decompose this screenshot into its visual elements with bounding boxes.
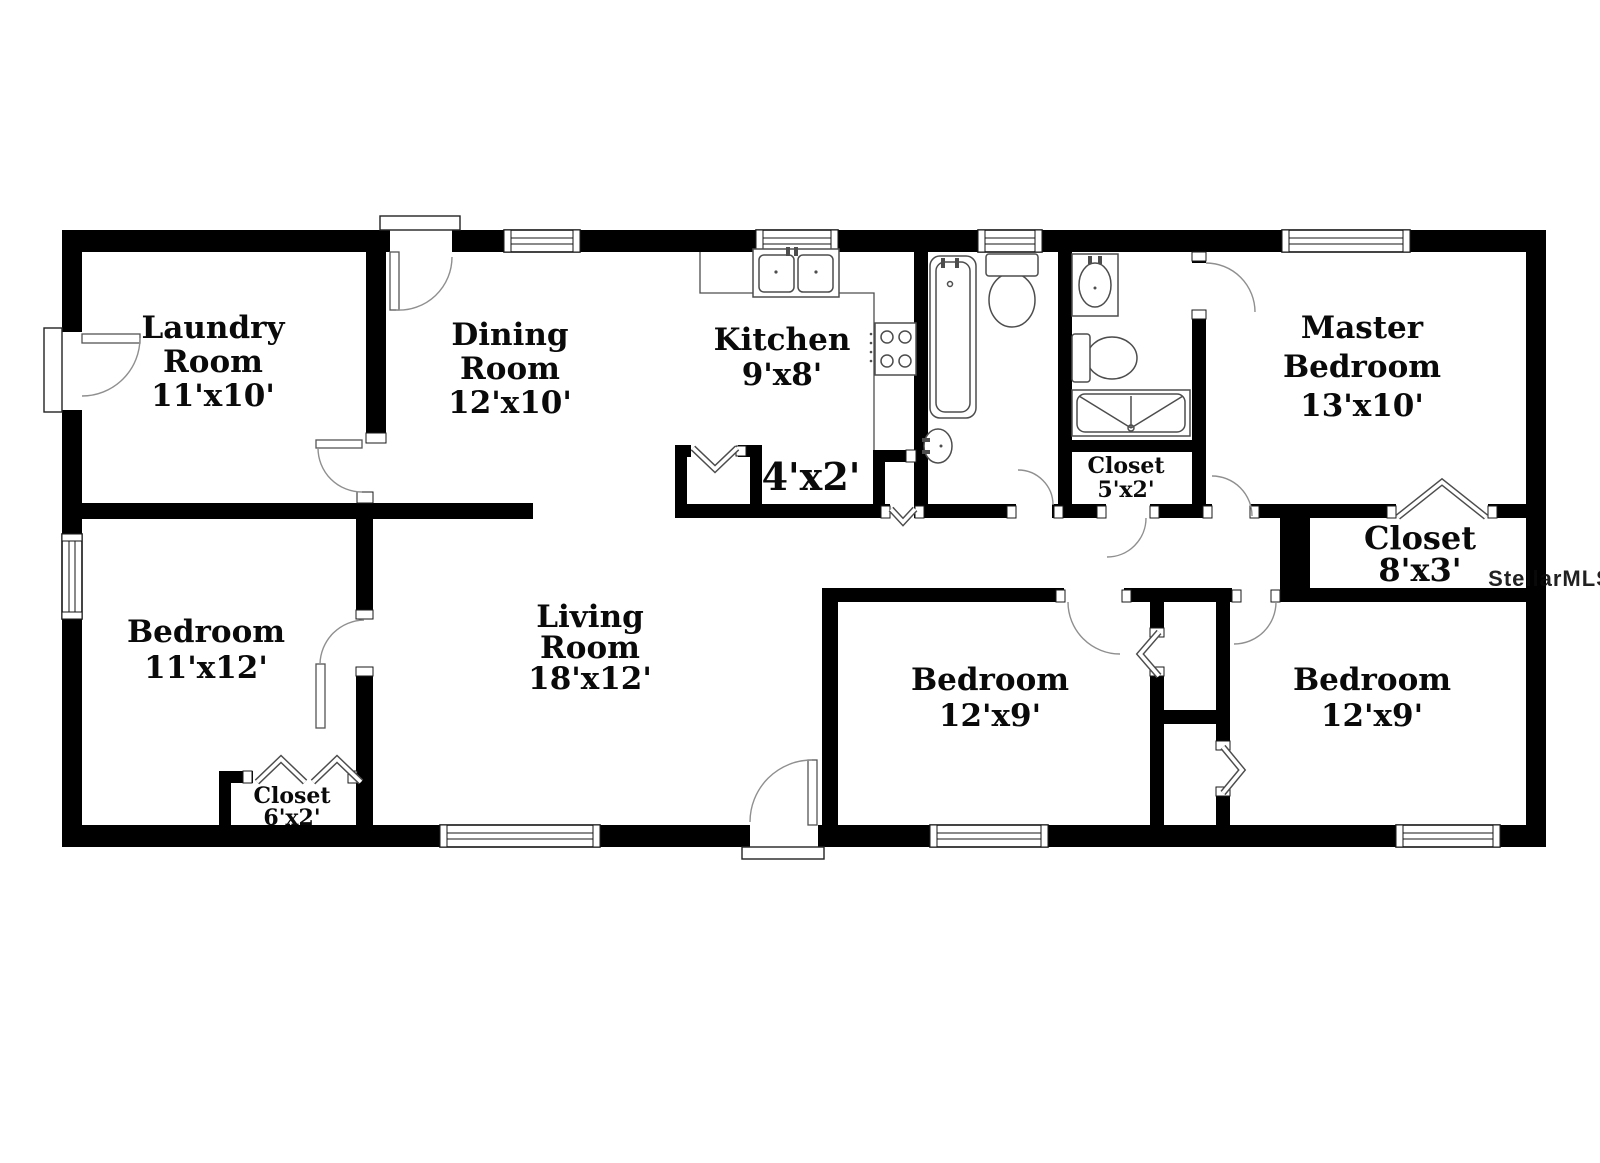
closet-5x2-dims: 5'x2'	[1097, 477, 1154, 503]
laundry-exterior-door-swing	[82, 338, 140, 396]
master-bedroom-dims: 13'x10'	[1300, 388, 1424, 424]
master-bath-sink-icon	[1072, 254, 1118, 316]
laundry-interior-door-swing	[318, 448, 362, 492]
back-door-leaf	[390, 252, 399, 310]
back-door-frame	[380, 216, 460, 230]
living-room-dims: 18'x12'	[528, 661, 652, 697]
back-door-swing	[396, 257, 452, 310]
kitchen-sink-icon	[753, 247, 839, 297]
kitchen-dims: 9'x8'	[742, 357, 823, 393]
master-bedroom-label-1: Master	[1301, 310, 1424, 346]
hall-bath-door-swing	[1018, 470, 1053, 505]
closet-4x2-dims: 4'x2'	[762, 454, 861, 499]
bifold-doors	[257, 448, 1486, 793]
closet-5x2-door-swing	[1107, 518, 1146, 557]
kitchen-label: Kitchen	[714, 322, 851, 358]
bedroom-middle-label: Bedroom	[911, 662, 1069, 698]
stellar-mls-watermark: StellarMLS	[1488, 566, 1600, 591]
bedroom-middle-door-swing	[1068, 602, 1120, 654]
front-door-swing	[750, 760, 812, 822]
bifold-hall-chase-icon	[891, 509, 915, 522]
front-door-leaf	[808, 760, 817, 825]
bedroom-right-dims: 12'x9'	[1321, 698, 1423, 734]
bedroom-right-label: Bedroom	[1293, 662, 1451, 698]
stove-icon	[870, 323, 916, 375]
master-bedroom-label-2: Bedroom	[1283, 349, 1441, 385]
laundry-room-dims: 11'x10'	[151, 378, 275, 414]
bedroom-right-door-swing	[1234, 602, 1276, 644]
bifold-closet-6x2-icon	[257, 759, 361, 782]
bedroom-left-door-leaf	[316, 664, 325, 728]
window-dining	[504, 230, 580, 252]
bifold-closet-bedroom-right-icon	[1223, 747, 1242, 793]
window-living-room	[440, 825, 600, 847]
bedroom-left-dims: 11'x12'	[144, 650, 268, 686]
dining-room-label-2: Room	[460, 351, 560, 387]
master-bath-door-swing	[1206, 263, 1255, 312]
window-bedroom-middle	[930, 825, 1048, 847]
laundry-room-label-1: Laundry	[142, 310, 286, 346]
dining-room-dims: 12'x10'	[448, 385, 572, 421]
shower-icon	[1072, 390, 1190, 436]
bifold-closet-master-icon	[1398, 482, 1486, 517]
laundry-exterior-door-leaf	[82, 334, 140, 343]
laundry-interior-door-leaf	[316, 440, 362, 448]
window-hall-bath	[978, 230, 1042, 252]
bedroom-left-label: Bedroom	[127, 614, 285, 650]
hall-toilet-icon	[986, 254, 1038, 327]
bedroom-left-door-swing	[320, 620, 364, 664]
closet-5x2-label: Closet	[1087, 453, 1165, 479]
dining-room-label-1: Dining	[451, 317, 568, 353]
laundry-room-label-2: Room	[163, 344, 263, 380]
master-toilet-icon	[1072, 334, 1137, 382]
bifold-closet-4x2-icon	[693, 448, 737, 469]
window-master-bedroom	[1282, 230, 1410, 252]
floor-plan: Laundry Room 11'x10' Dining Room 12'x10'…	[0, 0, 1600, 1163]
laundry-door-frame	[44, 328, 62, 412]
closet-8x3-dims: 8'x3'	[1378, 551, 1461, 589]
window-bedroom-right	[1396, 825, 1500, 847]
room-labels: Laundry Room 11'x10' Dining Room 12'x10'…	[127, 310, 1476, 831]
bifold-closet-bedroom-middle-icon	[1140, 632, 1159, 676]
bedroom-middle-dims: 12'x9'	[939, 698, 1041, 734]
window-bedroom-left	[62, 534, 82, 619]
closet-6x2-dims: 6'x2'	[263, 805, 320, 831]
front-door-sill	[742, 847, 824, 859]
master-bedroom-door-swing	[1212, 476, 1252, 516]
bathtub-icon	[930, 256, 976, 418]
